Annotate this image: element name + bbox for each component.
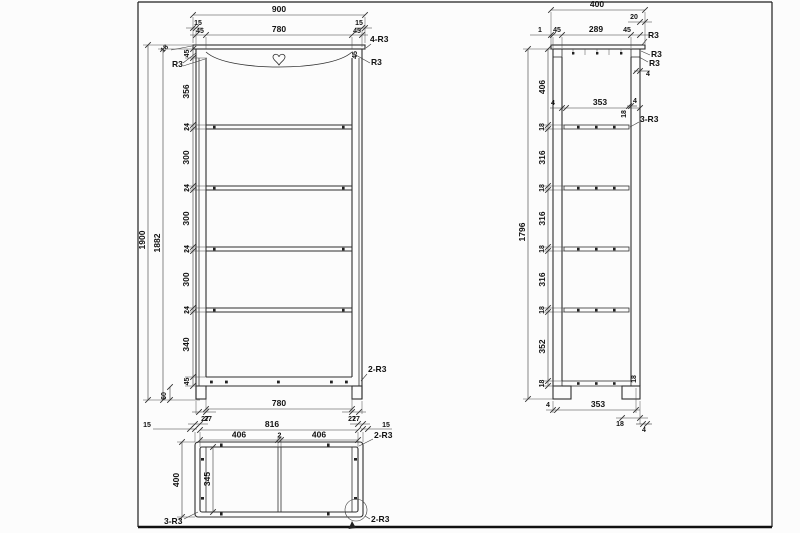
plan-corner-radius-note: 2-R3: [371, 514, 390, 524]
side-shelf-thickness-label: 18: [621, 110, 628, 118]
svg-text:352: 352: [537, 339, 547, 353]
plan-inner: [200, 447, 358, 512]
front-view: 900 15 15 45 780 45 4-R3 R3 R3 18 45 190…: [137, 4, 389, 423]
side-bottom-thickness-label: 18: [631, 375, 638, 383]
plan-half-right-label: 406: [312, 430, 326, 440]
side-bottom-leg-label: 18: [616, 421, 624, 428]
front-stile-left-label: 45: [196, 28, 204, 35]
plan-margin-left-label: 15: [143, 422, 151, 429]
side-view: 400 20 1 45 289 45 R3 R3 R3 4 4 18 3-R3 …: [517, 0, 662, 434]
side-back-post-label: 45: [623, 27, 631, 34]
side-overhang-label: 20: [630, 14, 638, 21]
front-shelves: [206, 125, 352, 312]
front-r3-right-note: R3: [371, 57, 382, 67]
technical-drawing: 900 15 15 45 780 45 4-R3 R3 R3 18 45 190…: [0, 0, 800, 533]
plan-view: 15 27 816 2 406 406 27 15 2-R3 400 345 3…: [143, 416, 393, 529]
side-bottom-width-label: 353: [591, 399, 605, 409]
svg-text:45: 45: [184, 378, 191, 386]
plan-depth-label: 400: [171, 473, 181, 487]
svg-text:18: 18: [539, 380, 546, 388]
front-stile-right-label: 45: [353, 28, 361, 35]
plan-bottom-left-radius-note: 3-R3: [164, 516, 183, 526]
front-bottom-radius-note: 2-R3: [368, 364, 387, 374]
svg-text:45: 45: [184, 50, 191, 58]
svg-text:18: 18: [539, 306, 546, 314]
front-corner-radius-note: 4-R3: [370, 34, 389, 44]
svg-text:316: 316: [537, 150, 547, 164]
side-shelf-front-gap-label: 4: [551, 100, 555, 107]
svg-text:356: 356: [181, 84, 191, 98]
svg-text:24: 24: [184, 184, 191, 192]
svg-text:340: 340: [181, 337, 191, 351]
plan-inner-width-label: 816: [265, 419, 279, 429]
side-r3-low-note: R3: [649, 58, 660, 68]
front-overall-height-label: 1900: [137, 230, 147, 249]
svg-text:316: 316: [537, 211, 547, 225]
svg-text:24: 24: [184, 306, 191, 314]
front-top-panel: [193, 45, 365, 49]
side-bottom-back-gap-label: 4: [642, 427, 646, 434]
svg-text:406: 406: [537, 80, 547, 94]
svg-text:24: 24: [184, 245, 191, 253]
plan-half-left-label: 406: [232, 430, 246, 440]
plan-outer: [195, 442, 363, 517]
heart-cutout-icon: [273, 54, 285, 65]
plan-margin-right-label: 15: [382, 422, 390, 429]
front-margin-right-label: 15: [355, 20, 363, 27]
side-inner-width-label: 289: [589, 24, 603, 34]
side-back-leg: [622, 386, 640, 399]
side-shelves: [564, 125, 629, 312]
front-leg-height-label: 60: [161, 392, 168, 400]
svg-text:316: 316: [537, 272, 547, 286]
front-height-chain-labels: 45 356 24 300 24 300 24 300 24 340 45: [181, 50, 191, 386]
svg-text:18: 18: [539, 123, 546, 131]
front-inner-height-label: 1882: [152, 233, 162, 252]
side-front-leg: [553, 386, 571, 399]
side-overall-height-label: 1796: [517, 222, 527, 241]
side-height-chain-labels: 406 18 316 18 316 18 316 18 352 18: [537, 80, 547, 388]
side-shelf-gap-label: 4: [633, 98, 637, 105]
front-rail-right-label: 45: [352, 51, 359, 59]
side-front-post-label: 45: [553, 27, 561, 34]
plan-inner-depth-label: 345: [202, 472, 212, 486]
svg-text:300: 300: [181, 150, 191, 164]
svg-text:300: 300: [181, 272, 191, 286]
svg-text:24: 24: [184, 123, 191, 131]
front-overall-width-label: 900: [272, 4, 286, 14]
detail-circle: [345, 499, 367, 521]
drawing-sheet: 900 15 15 45 780 45 4-R3 R3 R3 18 45 190…: [0, 0, 800, 533]
front-margin-left-label: 15: [194, 20, 202, 27]
side-front-gap-label: 1: [538, 27, 542, 34]
front-bottom-width-label: 780: [272, 398, 286, 408]
side-bottom-front-gap-label: 4: [546, 402, 550, 409]
side-shelf-radius-note: 3-R3: [640, 114, 659, 124]
plan-frame-right-label: 27: [348, 416, 356, 423]
front-left-leg: [196, 386, 206, 399]
svg-text:18: 18: [539, 245, 546, 253]
detail-arrow-icon: [349, 521, 357, 529]
front-inner-width-label: 780: [272, 24, 286, 34]
side-overall-width-label: 400: [590, 0, 604, 9]
side-shelf-width-label: 353: [593, 97, 607, 107]
sheet-frame: [138, 2, 772, 527]
front-right-leg: [352, 386, 362, 399]
side-back-gap-label: 4: [646, 71, 650, 78]
svg-text:300: 300: [181, 211, 191, 225]
plan-top-right-radius-note: 2-R3: [374, 430, 393, 440]
svg-text:18: 18: [539, 184, 546, 192]
side-r3-top-note: R3: [648, 30, 659, 40]
front-r3-left-note: R3: [172, 59, 183, 69]
